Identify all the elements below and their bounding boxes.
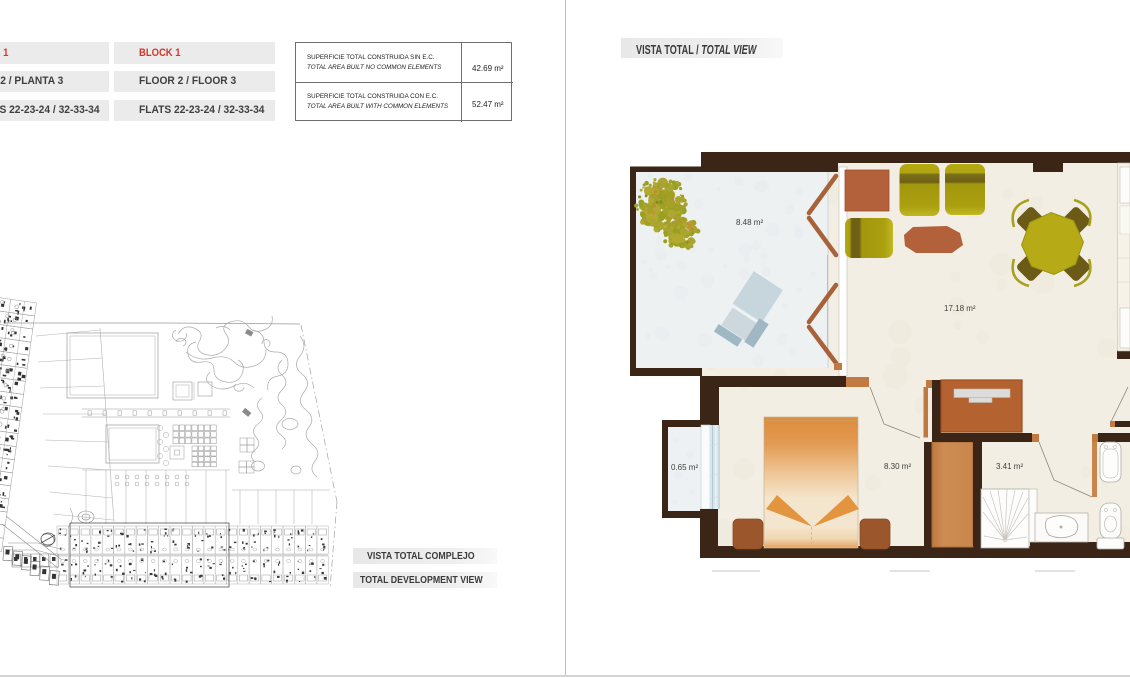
svg-text:8.30 m²: 8.30 m²: [884, 462, 911, 471]
svg-text:17.18 m²: 17.18 m²: [944, 304, 976, 313]
svg-text:0.65 m²: 0.65 m²: [671, 463, 698, 472]
svg-text:3.41 m²: 3.41 m²: [996, 462, 1023, 471]
svg-text:8.48 m²: 8.48 m²: [736, 218, 763, 227]
